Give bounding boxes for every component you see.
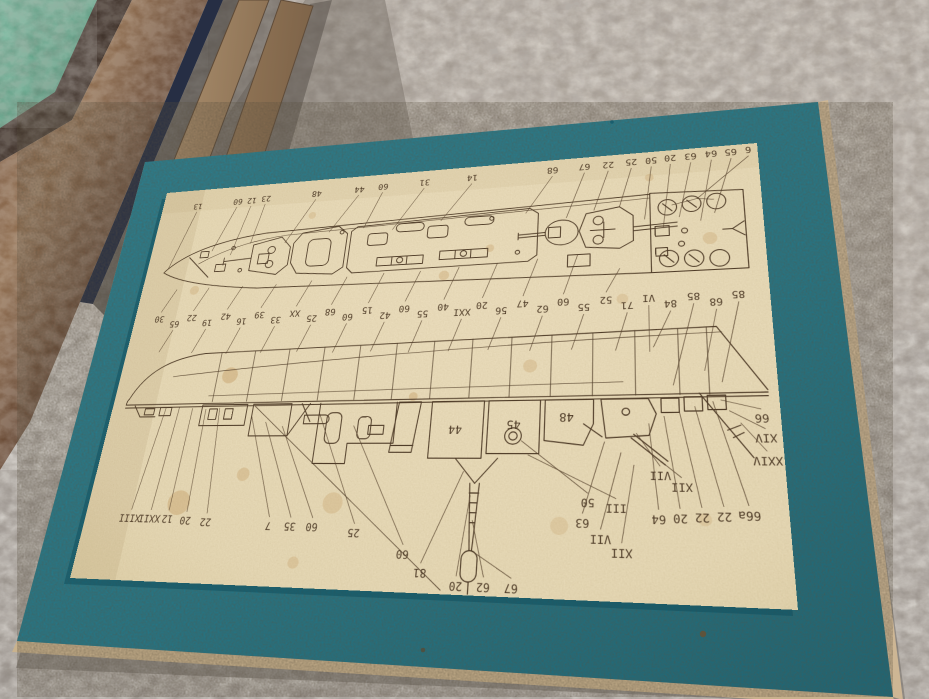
part-number-label: XII: [611, 545, 633, 560]
board-speck: [610, 120, 614, 124]
part-number-label: 25: [625, 157, 637, 167]
part-number-label: 20: [664, 152, 677, 162]
part-number-label: 22: [695, 510, 711, 524]
part-number-label: 71: [621, 299, 634, 310]
part-number-label: 67: [579, 161, 591, 171]
part-number-label: XXIV: [753, 454, 784, 467]
part-number-label: 62: [536, 303, 549, 314]
part-number-label: 84: [664, 297, 678, 309]
part-number-label: 64: [651, 512, 666, 526]
part-number-label: XXII: [137, 512, 161, 524]
part-number-label: 25: [306, 313, 318, 323]
part-number-label: 39: [254, 309, 266, 319]
part-number-label: 6: [745, 144, 752, 154]
part-number-label: XIV: [755, 431, 778, 444]
part-number-label: 65: [724, 146, 737, 157]
part-number-label: 50: [645, 155, 657, 165]
part-number-label: 60: [305, 520, 319, 533]
part-number-label: 14: [467, 172, 479, 182]
part-number-label: 20: [673, 511, 688, 525]
part-number-label: 66a: [738, 508, 762, 522]
part-number-label: 60: [557, 296, 570, 307]
part-number-label: VII: [650, 468, 672, 481]
part-number-label: 68: [324, 306, 336, 316]
inline-part-number: 44: [447, 423, 462, 436]
part-number-label: 23: [261, 194, 272, 203]
part-number-label: III: [606, 501, 627, 515]
part-number-label: 60: [341, 311, 353, 322]
part-number-label: 55: [416, 308, 428, 319]
plan-sheet-artwork: 1360122348446031146867222550206364656306…: [70, 143, 798, 610]
photo-stage: 1360122348446031146867222550206364656306…: [0, 0, 929, 699]
board-speck: [700, 631, 706, 637]
part-number-label: 20: [448, 578, 462, 592]
part-number-label: XXI: [453, 306, 471, 317]
part-number-label: 62: [476, 580, 490, 594]
part-number-label: 48: [311, 189, 322, 198]
part-number-label: 55: [577, 301, 590, 312]
part-number-label: 66: [754, 411, 770, 424]
inline-part-number: 45: [506, 418, 521, 432]
part-number-label: 56: [495, 305, 508, 316]
part-number-label: 81: [413, 565, 427, 579]
part-number-label: 85: [731, 288, 745, 300]
part-number-label: 60: [378, 182, 389, 192]
part-number-label: 68: [709, 295, 723, 307]
part-number-label: 44: [354, 184, 365, 194]
part-number-label: 35: [283, 520, 297, 533]
part-number-label: VII: [590, 532, 611, 546]
part-number-label: 85: [687, 290, 701, 302]
part-number-label: 16: [236, 316, 248, 326]
part-number-label: 40: [437, 301, 449, 312]
part-number-label: 20: [476, 299, 488, 310]
part-number-label: 63: [684, 151, 697, 161]
part-number-label: XII: [671, 480, 693, 494]
part-number-label: 22: [602, 159, 614, 169]
part-number-label: 47: [516, 298, 529, 309]
part-number-label: 22: [717, 509, 733, 523]
part-number-label: 60: [232, 197, 243, 206]
part-number-label: 52: [600, 294, 613, 305]
part-number-label: 64: [704, 148, 717, 159]
part-number-label: 42: [379, 310, 391, 321]
part-number-label: 60: [398, 303, 410, 314]
part-number-label: 68: [547, 165, 559, 175]
plan-sheet: 1360122348446031146867222550206364656306…: [70, 143, 798, 610]
part-number-label: 12: [246, 196, 257, 205]
part-number-label: 42: [220, 311, 232, 321]
part-number-label: 50: [581, 495, 595, 508]
part-number-label: 25: [347, 526, 361, 539]
part-number-label: 60: [395, 547, 409, 561]
part-number-label: VI: [642, 292, 655, 303]
inline-part-number: 48: [558, 410, 573, 424]
part-number-label: 31: [419, 177, 431, 187]
part-number-label: 22: [199, 515, 212, 527]
part-number-label: 15: [361, 305, 373, 316]
part-number-label: 63: [575, 516, 589, 530]
part-number-label: 33: [270, 314, 282, 324]
part-number-label: 67: [504, 581, 519, 596]
board-speck: [421, 648, 426, 653]
